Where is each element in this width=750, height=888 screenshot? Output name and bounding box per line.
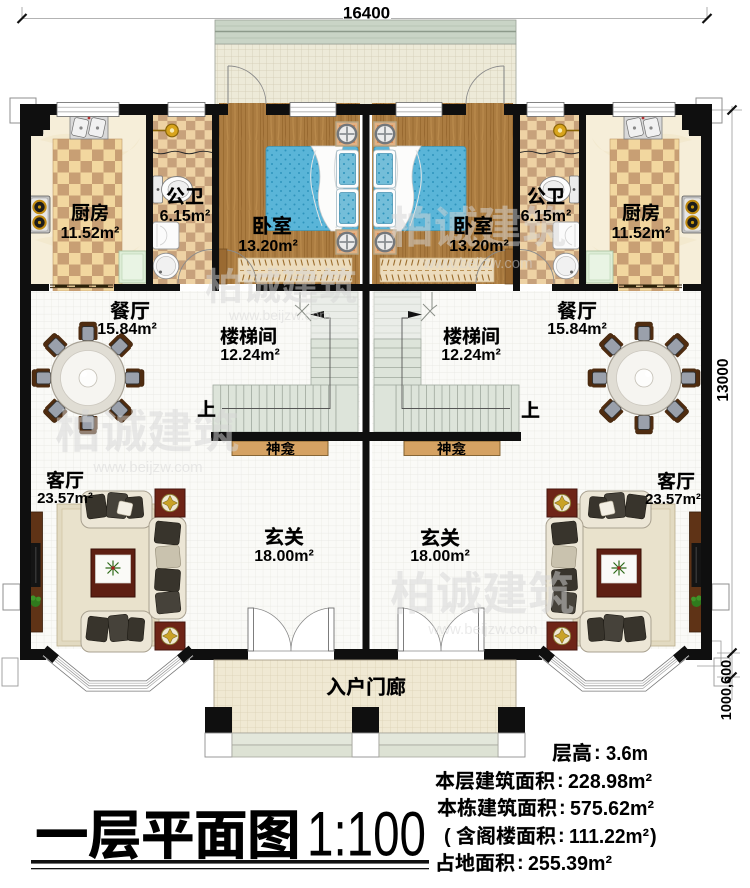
svg-text::: : — [594, 742, 601, 764]
svg-text:13000: 13000 — [715, 358, 732, 401]
svg-text:13.20m²: 13.20m² — [238, 238, 298, 255]
svg-text:1000,600: 1000,600 — [719, 660, 735, 720]
svg-text:18.00m²: 18.00m² — [254, 548, 314, 565]
svg-text::: : — [517, 852, 524, 874]
svg-text:www.beijzw.com: www.beijzw.com — [92, 459, 202, 476]
svg-text:228.98m²: 228.98m² — [568, 771, 652, 793]
svg-text:12.24m²: 12.24m² — [220, 347, 280, 364]
svg-text:255.39m²: 255.39m² — [528, 853, 612, 875]
svg-text:11.52m²: 11.52m² — [61, 225, 120, 242]
svg-text::: : — [558, 825, 565, 847]
svg-text:23.57m²: 23.57m² — [37, 490, 93, 507]
svg-text:1:100: 1:100 — [307, 800, 426, 870]
svg-text:15.84m²: 15.84m² — [547, 321, 607, 338]
svg-text:23.57m²: 23.57m² — [645, 491, 701, 508]
svg-text:13.20m²: 13.20m² — [449, 238, 509, 255]
svg-text:111.22m²: 111.22m² — [569, 826, 649, 848]
svg-text:18.00m²: 18.00m² — [410, 548, 470, 565]
svg-text:): ) — [650, 826, 657, 848]
svg-text:6.15m²: 6.15m² — [160, 208, 211, 225]
svg-text:www.beijzw.com: www.beijzw.com — [427, 621, 537, 638]
svg-text:3.6m: 3.6m — [606, 743, 648, 765]
svg-text::: : — [559, 797, 566, 819]
svg-text:575.62m²: 575.62m² — [570, 798, 654, 820]
svg-text:12.24m²: 12.24m² — [441, 347, 501, 364]
svg-text::: : — [557, 770, 564, 792]
svg-text:11.52m²: 11.52m² — [612, 225, 671, 242]
svg-text:16400: 16400 — [343, 4, 390, 23]
svg-text:(: ( — [444, 826, 451, 848]
svg-text:6.15m²: 6.15m² — [521, 208, 572, 225]
svg-text:www.beijzw.com: www.beijzw.com — [228, 307, 331, 323]
svg-text:15.84m²: 15.84m² — [97, 321, 157, 338]
svg-text:www.beijzw.com: www.beijzw.com — [422, 255, 532, 272]
